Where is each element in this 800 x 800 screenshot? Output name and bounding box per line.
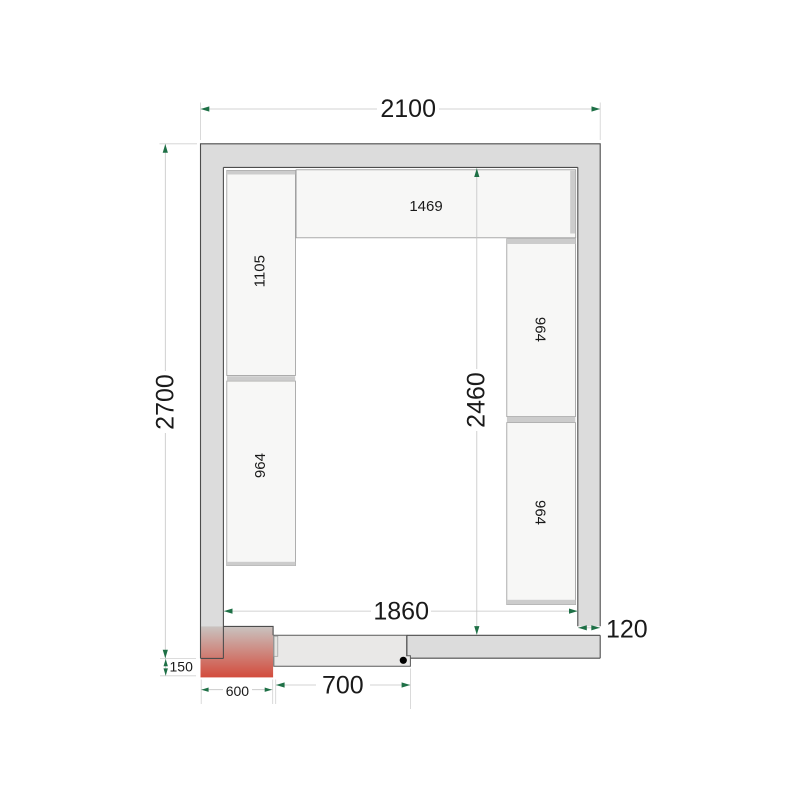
svg-text:964: 964 bbox=[532, 500, 549, 525]
svg-text:2100: 2100 bbox=[380, 95, 436, 123]
svg-text:1105: 1105 bbox=[252, 255, 269, 287]
svg-text:1860: 1860 bbox=[373, 597, 429, 625]
svg-text:700: 700 bbox=[322, 671, 364, 699]
svg-text:120: 120 bbox=[606, 615, 648, 643]
svg-text:600: 600 bbox=[226, 683, 250, 699]
svg-text:964: 964 bbox=[252, 453, 269, 478]
svg-text:1469: 1469 bbox=[409, 198, 442, 215]
svg-text:964: 964 bbox=[532, 317, 549, 342]
svg-text:150: 150 bbox=[170, 659, 194, 675]
svg-text:2700: 2700 bbox=[151, 374, 179, 430]
svg-text:2460: 2460 bbox=[463, 372, 491, 428]
